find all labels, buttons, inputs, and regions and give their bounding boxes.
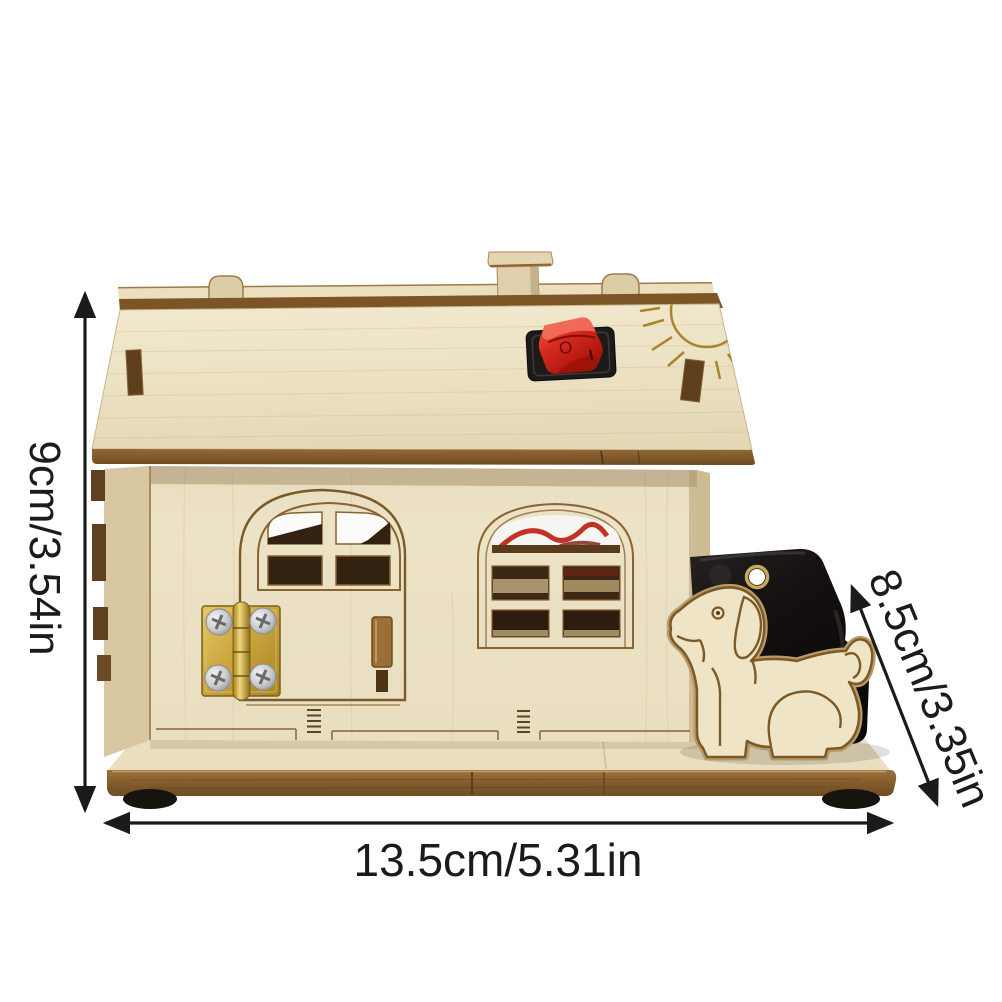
handle-slot <box>376 670 388 692</box>
width-dimension-label: 13.5cm/5.31in <box>354 834 643 886</box>
door-window-pane <box>268 556 322 585</box>
hinge-screw <box>205 665 231 691</box>
left-side-wall <box>104 466 150 757</box>
rubber-foot <box>123 789 177 809</box>
hinge-knuckle <box>233 602 250 700</box>
interior-floor <box>493 579 548 593</box>
rubber-foot <box>822 789 880 809</box>
roof-panel <box>92 304 752 450</box>
dog-house-kit-photo: O I <box>0 0 1002 1002</box>
hinge-screw <box>206 609 232 635</box>
roof-slot <box>126 350 143 396</box>
interior-floor <box>493 630 548 636</box>
finger-joint-slot <box>91 470 105 501</box>
hinge-screw <box>250 608 276 634</box>
finger-joint-slot <box>92 524 106 581</box>
hanging-hole <box>749 569 765 585</box>
product-photo: O I <box>0 0 1002 1002</box>
hinge-screw <box>250 664 276 690</box>
door-window-pane <box>336 556 390 585</box>
finger-joint-slot <box>97 655 111 681</box>
pane-red-hint <box>563 568 618 576</box>
eave-edge-band <box>92 449 755 465</box>
base-front-edge <box>107 770 896 796</box>
interior-floor <box>564 630 619 636</box>
finger-joint-slot <box>93 607 108 640</box>
interior-floor <box>564 580 619 592</box>
box-recess <box>709 564 731 586</box>
door-hinge <box>202 602 280 700</box>
front-wall <box>150 466 697 742</box>
walls <box>91 466 721 757</box>
arch-interior-band <box>492 545 620 553</box>
dog-eye-pupil <box>716 611 720 615</box>
height-dimension-label: 9cm/3.54in <box>20 440 69 655</box>
